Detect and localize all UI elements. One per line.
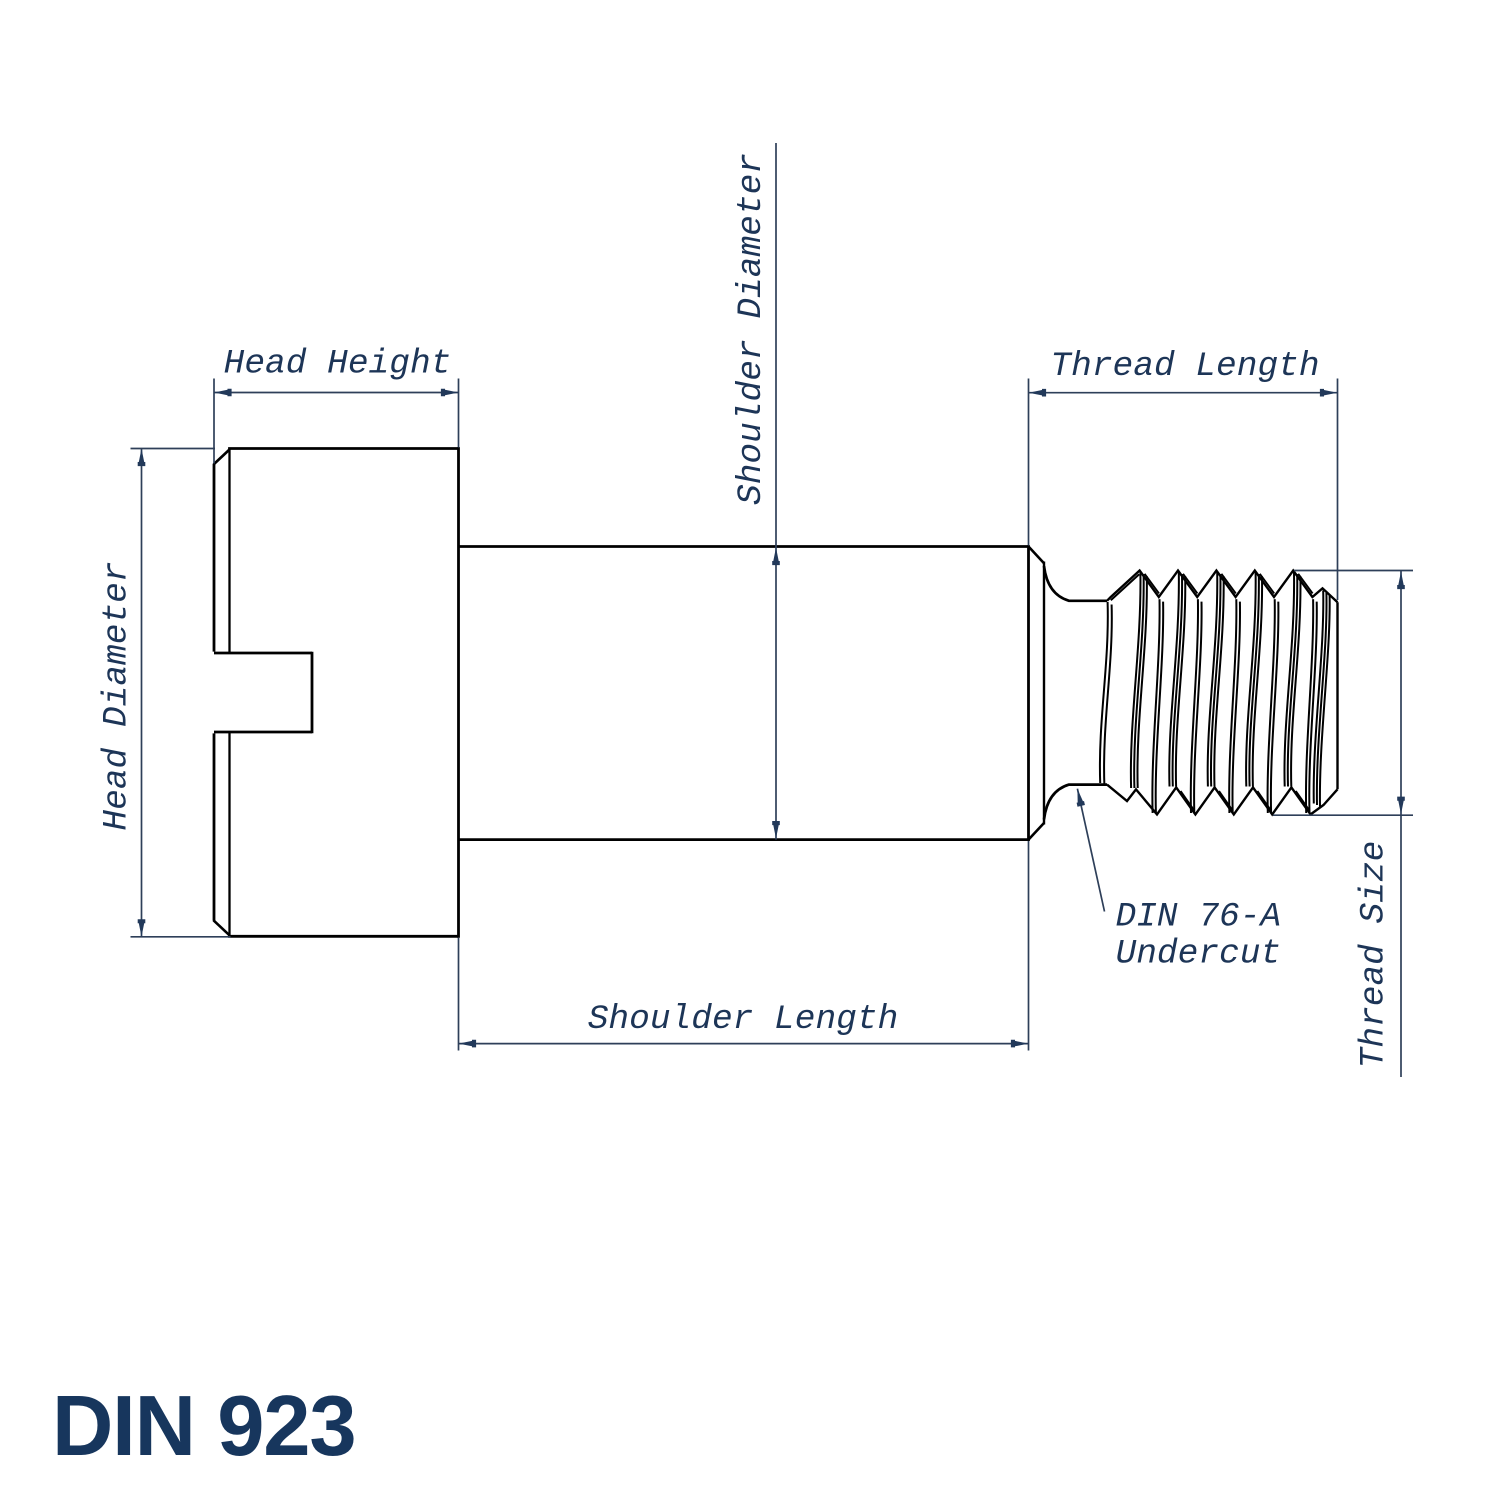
svg-text:Thread Size: Thread Size <box>1355 841 1394 1069</box>
svg-text:Thread Length: Thread Length <box>1050 347 1319 386</box>
svg-text:DIN 923: DIN 923 <box>52 1379 355 1474</box>
svg-text:Head Height: Head Height <box>224 345 452 384</box>
svg-text:Head Diameter: Head Diameter <box>98 561 137 830</box>
svg-text:Undercut: Undercut <box>1116 935 1282 974</box>
svg-text:Shoulder Length: Shoulder Length <box>588 1000 899 1039</box>
svg-text:Shoulder Diameter: Shoulder Diameter <box>732 153 771 505</box>
svg-text:DIN 76-A: DIN 76-A <box>1116 898 1282 937</box>
